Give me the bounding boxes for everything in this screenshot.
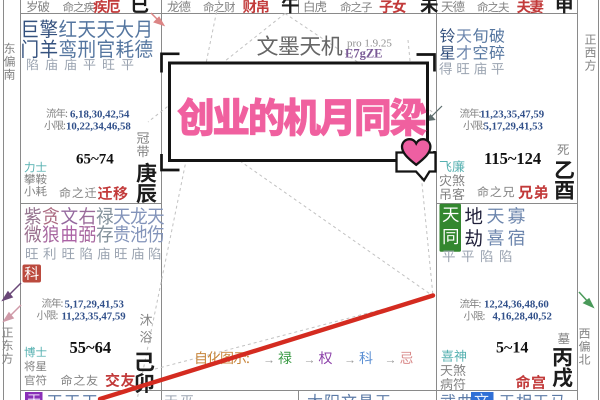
- svg-text:55~64: 55~64: [70, 338, 112, 357]
- svg-text:5,17,29,41,53: 5,17,29,41,53: [65, 298, 125, 310]
- svg-text:11,23,35,47,59: 11,23,35,47,59: [62, 311, 127, 323]
- svg-text:6,18,30,42,54: 6,18,30,42,54: [70, 108, 130, 120]
- svg-text:→: →: [385, 353, 397, 367]
- svg-text:10,22,34,46,58: 10,22,34,46,58: [66, 121, 131, 133]
- svg-text:5~14: 5~14: [496, 340, 528, 357]
- svg-text:115~124: 115~124: [484, 149, 541, 168]
- svg-text:→: →: [263, 353, 275, 367]
- svg-text:5,17,29,41,53: 5,17,29,41,53: [484, 121, 544, 133]
- svg-text:4,16,28,40,52: 4,16,28,40,52: [493, 311, 552, 323]
- svg-text:E7gZE: E7gZE: [345, 47, 383, 61]
- svg-text:11,23,35,47,59: 11,23,35,47,59: [480, 108, 545, 120]
- svg-text:12,24,36,48,60: 12,24,36,48,60: [484, 298, 549, 310]
- svg-text:→: →: [344, 353, 356, 367]
- svg-text:→: →: [304, 353, 316, 367]
- svg-text:65~74: 65~74: [76, 152, 114, 168]
